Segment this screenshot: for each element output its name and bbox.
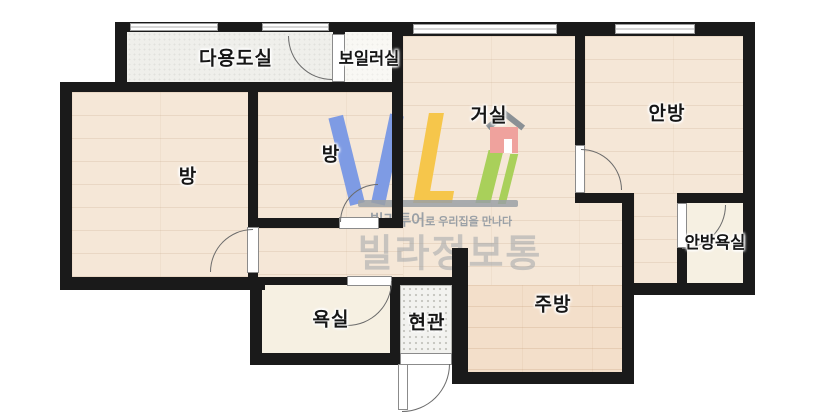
room-label-utility: 다용도실: [199, 44, 273, 71]
floor-vestibule: [634, 193, 677, 283]
brand-watermark: 빌라정보통: [358, 223, 543, 278]
room-label-master-bedroom: 안방: [649, 99, 686, 126]
wall-room-middle-bottom: [258, 218, 403, 228]
window-utility-1: [130, 23, 218, 31]
room-label-bathroom: 욕실: [313, 305, 350, 332]
wall-bath-left: [250, 277, 262, 365]
wall-utility-left: [115, 22, 127, 90]
room-label-boiler: 보일러실: [339, 45, 400, 69]
room-label-entrance: 현관: [409, 308, 446, 335]
room-label-room-left: 방: [179, 162, 197, 189]
house-door-icon: [504, 139, 512, 153]
wall-living-master-divider: [575, 36, 585, 145]
wall-utility-bottom: [60, 82, 403, 92]
logo-letter-i-stem2: [498, 154, 518, 204]
room-label-master-bathroom: 안방욕실: [685, 229, 746, 253]
wall-master-bottom: [575, 193, 634, 203]
wall-kitchen-bottom: [452, 372, 634, 384]
wall-outer-left: [60, 82, 72, 290]
wall-outer-right: [743, 22, 755, 295]
wall-room-left-bottom: [60, 277, 265, 290]
floor-plan: 빌라투어로 우리집을 만나다 빌라정보통 다용: [0, 0, 840, 420]
door-arc-entrance: [402, 364, 450, 412]
wall-bottom-right: [622, 283, 755, 295]
wall-entrance-kitchen-divider: [452, 248, 468, 384]
room-label-room-middle: 방: [322, 140, 340, 167]
wall-bath-bottom: [250, 353, 400, 365]
window-living: [413, 24, 557, 34]
logo-letter-l-stem: [413, 113, 444, 203]
room-label-kitchen: 주방: [535, 290, 572, 317]
window-master: [615, 24, 695, 34]
logo-underline: [358, 200, 518, 207]
room-label-living: 거실: [471, 101, 508, 128]
window-utility-2: [262, 23, 329, 31]
